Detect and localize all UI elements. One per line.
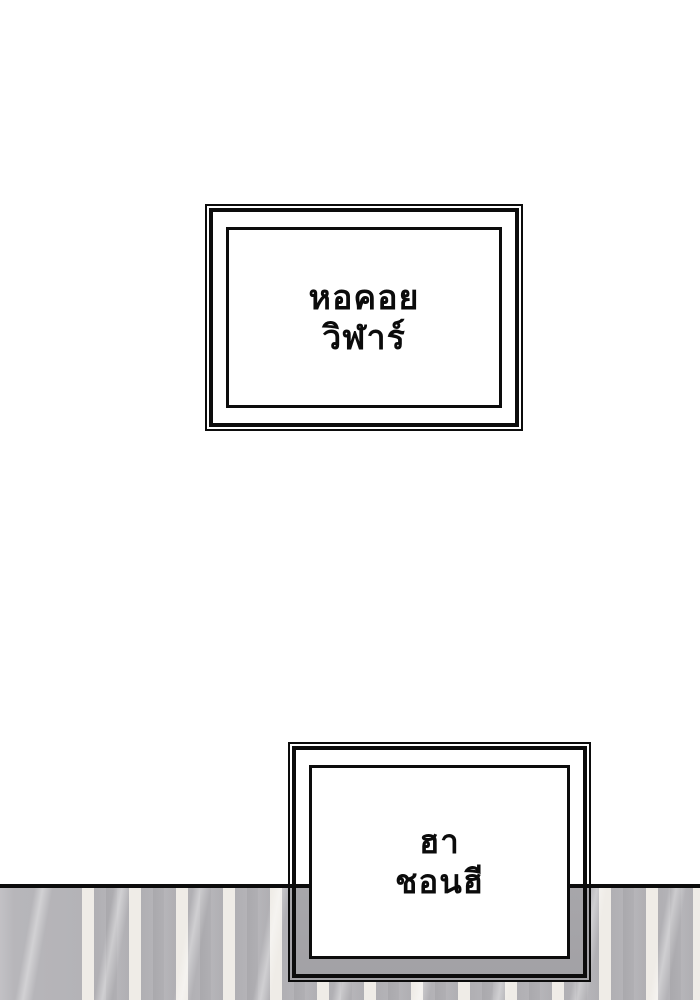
sign-text-line: วิฬาร์	[322, 318, 406, 358]
comic-panel: หอคอย วิฬาร์ ฮา ชอนฮี	[0, 0, 700, 1000]
sign-text-line: ฮา	[419, 822, 460, 862]
sign-text-line: หอคอย	[309, 278, 420, 318]
cat-tower-sign-frame: หอคอย วิฬาร์	[209, 208, 519, 427]
sign-text-line: ชอนฮี	[395, 862, 484, 902]
ha-cheonhee-sign: ฮา ชอนฮี	[288, 742, 591, 982]
ha-cheonhee-sign-frame: ฮา ชอนฮี	[292, 746, 587, 978]
cat-tower-sign-panel: หอคอย วิฬาร์	[226, 227, 502, 408]
cat-tower-sign: หอคอย วิฬาร์	[205, 204, 523, 431]
ha-cheonhee-sign-panel: ฮา ชอนฮี	[309, 765, 570, 959]
